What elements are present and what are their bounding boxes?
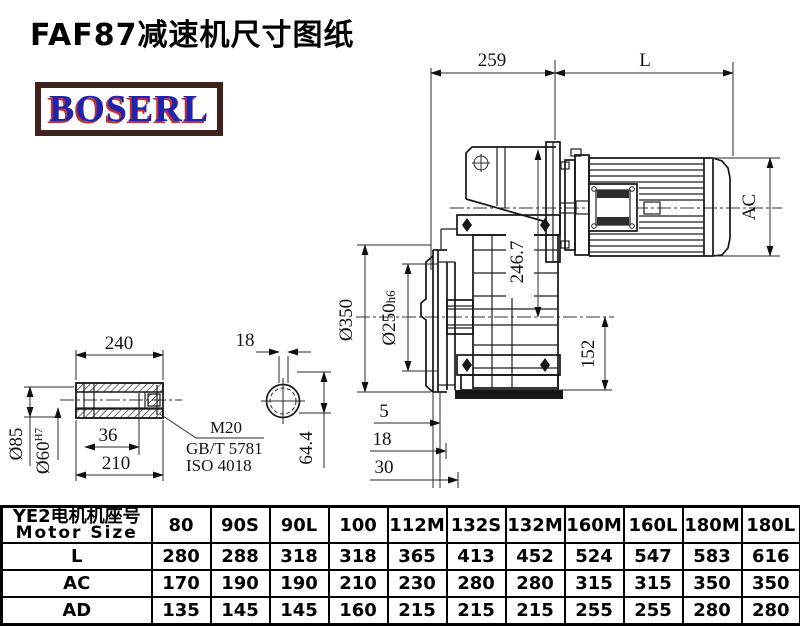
cell-L-132S: 413 xyxy=(447,543,506,570)
dim-shaft-od: Ø85 xyxy=(6,428,27,461)
col-header-160L: 160L xyxy=(624,507,683,544)
cell-L-112M: 365 xyxy=(388,543,447,570)
cell-L-132M: 452 xyxy=(506,543,565,570)
table-row-AD: AD 135 145 145 160 215 215 215 255 255 2… xyxy=(2,597,800,625)
dim-shaft-usable: 210 xyxy=(102,453,131,474)
cell-L-90S: 288 xyxy=(211,543,270,570)
cell-AD-180L: 280 xyxy=(742,597,800,625)
cell-AD-100: 160 xyxy=(329,597,388,625)
motor-size-header: YE2电机机座号 Motor Size xyxy=(2,507,152,544)
shaft-section-circle xyxy=(261,378,305,424)
page: { "title": "FAF87减速机尺寸图纸", "logo": { "te… xyxy=(0,0,800,614)
cell-AC-132S: 280 xyxy=(447,570,506,597)
cell-AD-180M: 280 xyxy=(683,597,742,625)
position-mark-icon xyxy=(472,154,490,172)
row-label-AC: AC xyxy=(2,570,152,597)
motor-size-table: YE2电机机座号 Motor Size 80 90S 90L 100 112M … xyxy=(0,505,800,626)
col-header-90S: 90S xyxy=(211,507,270,544)
cell-AD-160L: 255 xyxy=(624,597,683,625)
dim-offset-18: 18 xyxy=(373,429,392,450)
dim-offset-5: 5 xyxy=(379,401,389,422)
dim-offset-30: 30 xyxy=(375,457,394,478)
cell-L-180M: 583 xyxy=(683,543,742,570)
cell-AC-100: 210 xyxy=(329,570,388,597)
shaft-view xyxy=(60,383,182,418)
reducer-housing xyxy=(447,142,563,399)
dim-flange-od: Ø350 xyxy=(336,299,357,341)
cell-AC-80: 170 xyxy=(152,570,211,597)
cell-AD-90L: 145 xyxy=(270,597,329,625)
col-header-112M: 112M xyxy=(388,507,447,544)
cell-AC-160L: 315 xyxy=(624,570,683,597)
col-header-180M: 180M xyxy=(683,507,742,544)
shaft-view-dimensions xyxy=(24,350,331,481)
main-view-dimension-labels: 259 L AC 246.7 152 Ø350 Ø250h6 5 18 30 xyxy=(336,50,760,478)
dim-bore-tolerance: H7 xyxy=(33,427,45,441)
row-label-L: L xyxy=(2,543,152,570)
cell-L-160L: 547 xyxy=(624,543,683,570)
col-header-80: 80 xyxy=(152,507,211,544)
table-row-AC: AC 170 190 190 210 230 280 280 315 315 3… xyxy=(2,570,800,597)
dim-across: 64.4 xyxy=(296,431,317,465)
motor-size-header-en: Motor Size xyxy=(3,525,151,542)
dim-bore-value: Ø60 xyxy=(33,441,54,474)
col-header-132S: 132S xyxy=(447,507,506,544)
dim-center-to-base: 152 xyxy=(578,340,599,369)
cell-L-100: 318 xyxy=(329,543,388,570)
dim-pilot-value: Ø250 xyxy=(379,303,400,345)
col-header-90L: 90L xyxy=(270,507,329,544)
cell-L-180L: 616 xyxy=(742,543,800,570)
thread-callout: M20 xyxy=(210,418,242,437)
cell-AD-90S: 145 xyxy=(211,597,270,625)
dim-shaft-step: 36 xyxy=(99,425,118,446)
cell-L-80: 280 xyxy=(152,543,211,570)
dim-motor-diameter: AC xyxy=(739,194,760,220)
table-header-row: YE2电机机座号 Motor Size 80 90S 90L 100 112M … xyxy=(2,507,800,544)
table-row-L: L 280 288 318 318 365 413 452 524 547 58… xyxy=(2,543,800,570)
cell-AD-132S: 215 xyxy=(447,597,506,625)
dim-top-to-center: 246.7 xyxy=(507,241,528,284)
main-view-dimensions xyxy=(357,60,780,488)
cell-AC-132M: 280 xyxy=(506,570,565,597)
cell-L-90L: 318 xyxy=(270,543,329,570)
cell-AC-180M: 350 xyxy=(683,570,742,597)
dim-shaft-length: 240 xyxy=(105,333,134,354)
dim-key-width: 18 xyxy=(236,330,255,351)
cell-AD-112M: 215 xyxy=(388,597,447,625)
dim-pilot-tolerance: h6 xyxy=(383,290,398,304)
cell-AC-112M: 230 xyxy=(388,570,447,597)
main-view-centerlines xyxy=(356,208,782,317)
row-label-AD: AD xyxy=(2,597,152,625)
cell-AC-90S: 190 xyxy=(211,570,270,597)
col-header-180L: 180L xyxy=(742,507,800,544)
col-header-100: 100 xyxy=(329,507,388,544)
dim-reducer-width: 259 xyxy=(478,50,507,71)
col-header-160M: 160M xyxy=(565,507,624,544)
cell-AC-160M: 315 xyxy=(565,570,624,597)
cell-AD-160M: 255 xyxy=(565,597,624,625)
cell-AC-180L: 350 xyxy=(742,570,800,597)
cell-L-160M: 524 xyxy=(565,543,624,570)
cell-AD-132M: 215 xyxy=(506,597,565,625)
col-header-132M: 132M xyxy=(506,507,565,544)
cell-AC-90L: 190 xyxy=(270,570,329,597)
standard-iso: ISO 4018 xyxy=(186,456,252,475)
dim-motor-length: L xyxy=(639,50,651,71)
dim-pilot-diameter: Ø250h6 xyxy=(379,290,400,346)
terminal-box xyxy=(589,184,637,231)
technical-drawing: 259 L AC 246.7 152 Ø350 Ø250h6 5 18 30 xyxy=(0,0,800,505)
dim-shaft-bore: Ø60H7 xyxy=(33,427,54,474)
cell-AD-80: 135 xyxy=(152,597,211,625)
motor xyxy=(560,149,730,256)
